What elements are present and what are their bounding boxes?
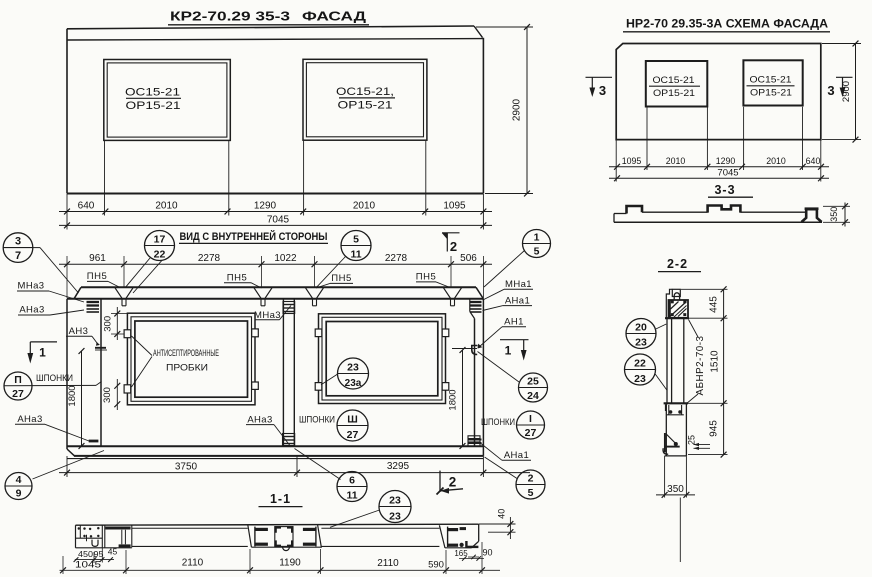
- svg-text:1: 1: [534, 231, 540, 243]
- svg-text:АН3: АН3: [69, 326, 89, 337]
- svg-text:ОС15-21: ОС15-21: [653, 75, 695, 85]
- svg-text:АНа1: АНа1: [505, 295, 530, 306]
- svg-text:1022: 1022: [274, 253, 297, 264]
- svg-text:3: 3: [599, 83, 606, 98]
- svg-text:1190: 1190: [279, 557, 301, 568]
- svg-text:ШПОНКИ: ШПОНКИ: [481, 417, 515, 427]
- svg-text:445: 445: [709, 296, 720, 313]
- svg-text:27: 27: [12, 388, 24, 400]
- svg-text:7: 7: [15, 250, 21, 262]
- svg-text:ОС15-21,: ОС15-21,: [336, 86, 394, 98]
- svg-text:7045: 7045: [717, 168, 738, 179]
- svg-text:24: 24: [527, 390, 539, 402]
- svg-text:2: 2: [528, 472, 534, 484]
- svg-text:17: 17: [154, 233, 166, 245]
- svg-text:640: 640: [806, 156, 821, 166]
- svg-text:2010: 2010: [155, 200, 178, 211]
- svg-text:2: 2: [450, 239, 457, 254]
- svg-text:ОР15-21: ОР15-21: [750, 88, 792, 98]
- svg-text:ШПОНКИ: ШПОНКИ: [36, 373, 73, 383]
- svg-text:2278: 2278: [385, 253, 408, 264]
- svg-text:2110: 2110: [182, 557, 204, 568]
- svg-text:П: П: [14, 374, 22, 386]
- svg-text:АНа3: АНа3: [17, 414, 42, 425]
- svg-text:I: I: [529, 413, 532, 425]
- svg-text:25: 25: [687, 435, 697, 445]
- svg-text:2: 2: [449, 475, 457, 490]
- svg-text:ОС15-21: ОС15-21: [125, 86, 180, 98]
- svg-text:5: 5: [353, 233, 359, 245]
- svg-text:945: 945: [709, 420, 720, 437]
- svg-text:АНа3: АНа3: [19, 305, 44, 316]
- svg-text:ОР15-21: ОР15-21: [126, 100, 181, 112]
- svg-text:961: 961: [89, 253, 106, 264]
- svg-text:1290: 1290: [716, 156, 736, 166]
- svg-text:1800: 1800: [448, 389, 459, 410]
- svg-text:ВИД С ВНУТРЕННЕЙ СТОРОНЫ: ВИД С ВНУТРЕННЕЙ СТОРОНЫ: [180, 230, 328, 243]
- svg-text:23: 23: [634, 373, 646, 385]
- svg-text:20: 20: [635, 321, 647, 333]
- svg-text:23: 23: [389, 510, 401, 522]
- svg-text:ПРОБКИ: ПРОБКИ: [166, 362, 208, 372]
- svg-text:МНа3: МНа3: [18, 281, 45, 292]
- svg-text:23а: 23а: [345, 378, 362, 389]
- svg-text:2-2: 2-2: [667, 257, 688, 271]
- svg-text:2900: 2900: [841, 81, 852, 102]
- svg-text:11: 11: [346, 489, 357, 501]
- svg-text:ОС15-21: ОС15-21: [750, 75, 792, 85]
- svg-text:22: 22: [154, 248, 166, 260]
- svg-text:450: 450: [78, 550, 94, 559]
- svg-text:ПН5: ПН5: [87, 271, 107, 282]
- svg-text:АНТИСЕПТИРОВАННЫЕ: АНТИСЕПТИРОВАННЫЕ: [153, 348, 219, 358]
- svg-text:300: 300: [102, 387, 113, 403]
- svg-text:ПН5: ПН5: [416, 272, 436, 283]
- svg-text:1510: 1510: [710, 350, 721, 373]
- svg-text:2010: 2010: [666, 156, 686, 166]
- svg-text:300: 300: [103, 316, 114, 332]
- svg-text:ПН5: ПН5: [227, 272, 247, 283]
- svg-text:1095: 1095: [622, 156, 642, 166]
- svg-text:1: 1: [39, 346, 46, 360]
- svg-text:1095: 1095: [443, 200, 466, 211]
- svg-text:2278: 2278: [198, 253, 221, 264]
- svg-text:350: 350: [667, 484, 684, 495]
- svg-text:ШПОНКИ: ШПОНКИ: [299, 415, 335, 425]
- svg-text:25: 25: [527, 375, 539, 387]
- svg-text:ФАСАД: ФАСАД: [302, 9, 367, 24]
- svg-text:2010: 2010: [766, 156, 786, 166]
- svg-text:НР2-70 29.35-3А СХЕМА ФАСАДА: НР2-70 29.35-3А СХЕМА ФАСАДА: [626, 17, 828, 31]
- svg-text:АНа1: АНа1: [504, 450, 529, 461]
- svg-text:Ш: Ш: [347, 413, 358, 425]
- svg-text:3: 3: [827, 83, 834, 98]
- svg-text:5: 5: [528, 487, 534, 499]
- svg-text:3-3: 3-3: [714, 183, 735, 197]
- svg-text:23: 23: [389, 494, 401, 506]
- svg-text:590: 590: [428, 560, 444, 571]
- svg-text:6: 6: [349, 474, 355, 486]
- svg-text:3295: 3295: [387, 461, 410, 472]
- svg-text:4: 4: [16, 474, 22, 486]
- svg-text:23: 23: [635, 336, 647, 348]
- svg-text:МНа1: МНа1: [505, 279, 532, 290]
- svg-text:350: 350: [829, 207, 839, 222]
- svg-text:ПН5: ПН5: [331, 273, 351, 284]
- svg-text:АБНР2-70-3: АБНР2-70-3: [695, 336, 706, 396]
- svg-text:22: 22: [634, 357, 646, 369]
- svg-text:1: 1: [505, 344, 512, 358]
- svg-text:ОР15-21: ОР15-21: [653, 88, 695, 98]
- svg-text:27: 27: [525, 427, 537, 439]
- svg-text:КР2-70.29 35-3: КР2-70.29 35-3: [170, 9, 290, 24]
- svg-text:9: 9: [16, 487, 22, 499]
- svg-text:11: 11: [350, 248, 361, 260]
- svg-text:640: 640: [78, 200, 95, 211]
- svg-text:ОР15-21: ОР15-21: [338, 100, 393, 112]
- svg-text:1045: 1045: [75, 559, 101, 569]
- svg-text:90: 90: [482, 548, 492, 558]
- svg-text:506: 506: [460, 253, 477, 264]
- svg-text:1-1: 1-1: [270, 492, 291, 506]
- svg-text:27: 27: [347, 429, 359, 441]
- svg-text:АН1: АН1: [504, 317, 524, 328]
- svg-text:1290: 1290: [254, 200, 277, 211]
- svg-text:2110: 2110: [377, 558, 399, 569]
- svg-text:3750: 3750: [175, 461, 198, 472]
- svg-text:40: 40: [497, 509, 507, 519]
- svg-text:7045: 7045: [267, 214, 290, 225]
- svg-text:23: 23: [347, 361, 359, 373]
- svg-text:2010: 2010: [353, 200, 376, 211]
- svg-text:1800: 1800: [67, 385, 78, 406]
- svg-text:2900: 2900: [512, 98, 523, 121]
- svg-text:АНа3: АНа3: [247, 414, 272, 425]
- svg-text:45: 45: [108, 547, 118, 557]
- svg-text:3: 3: [15, 235, 21, 247]
- svg-text:5: 5: [534, 245, 540, 257]
